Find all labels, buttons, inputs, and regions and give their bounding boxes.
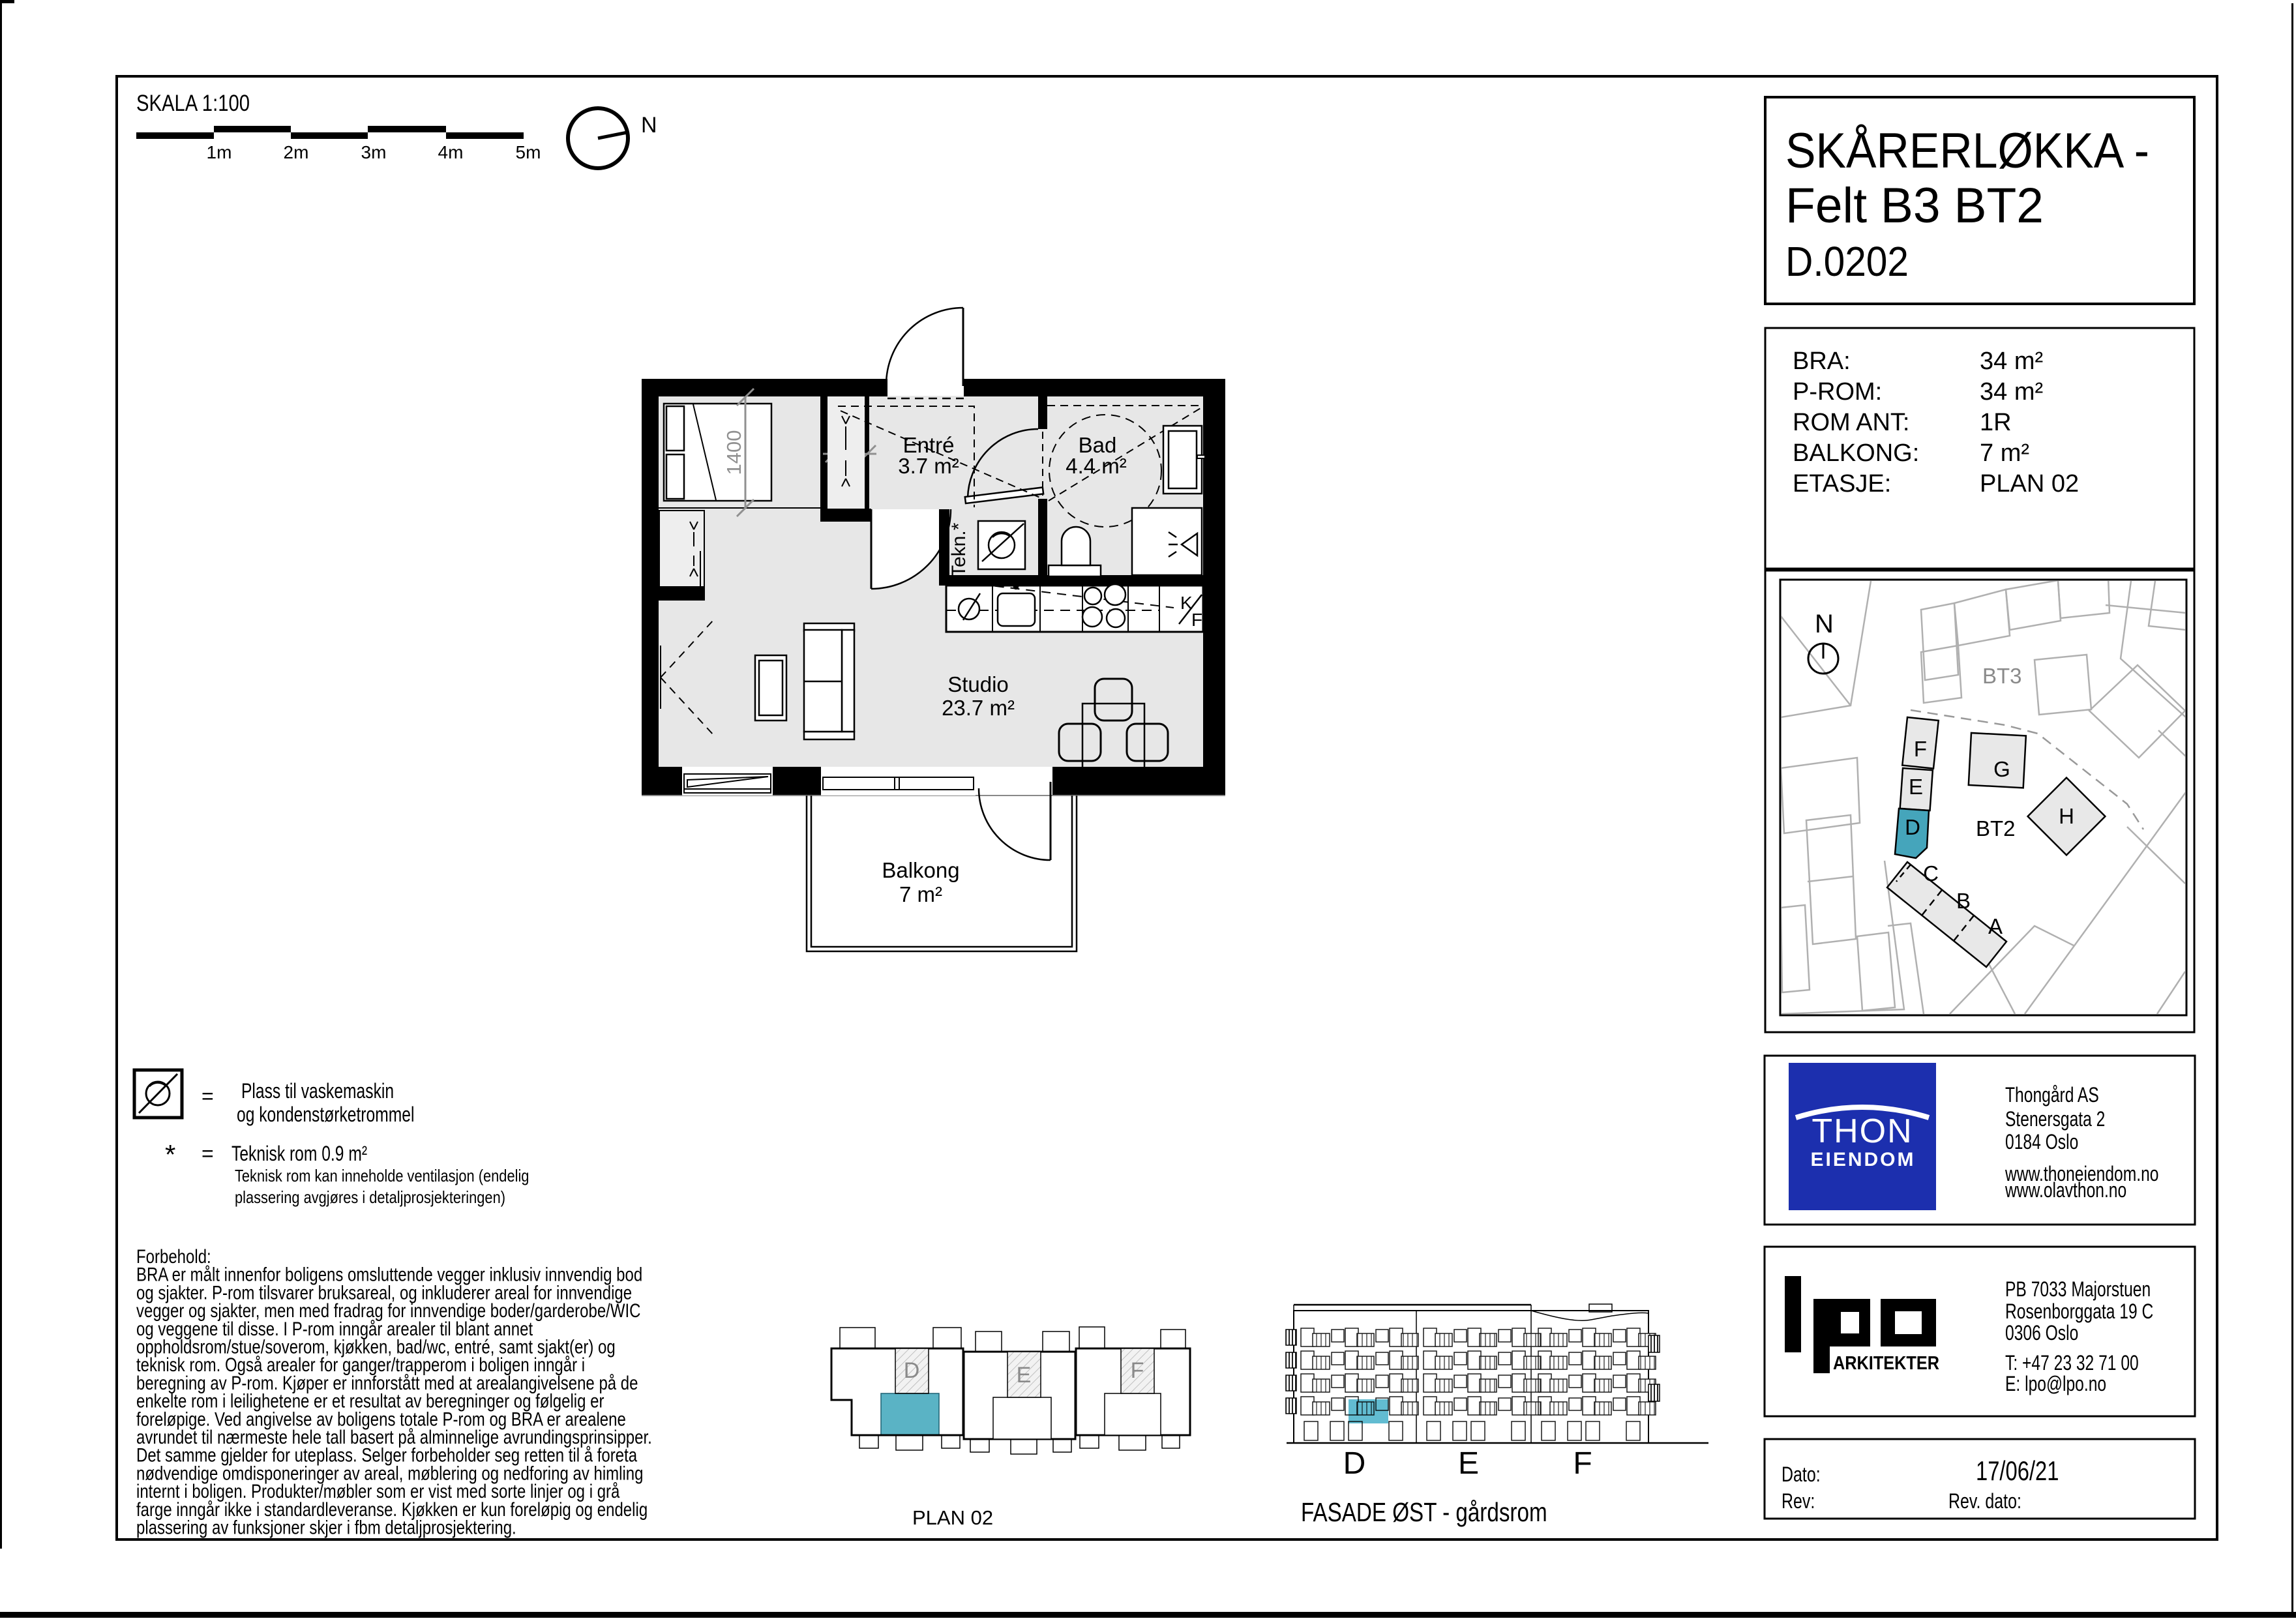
svg-text:Dato:: Dato:: [1782, 1463, 1821, 1487]
svg-text:Plass til vaskemaskin: Plass til vaskemaskin: [241, 1080, 394, 1103]
svg-text:SKALA 1:100: SKALA 1:100: [136, 91, 250, 116]
svg-text:ETASJE:: ETASJE:: [1793, 470, 1891, 498]
svg-text:1400: 1400: [723, 430, 745, 475]
svg-text:F: F: [1191, 610, 1202, 630]
svg-text:D: D: [904, 1358, 920, 1383]
svg-text:PB 7033 Majorstuen: PB 7033 Majorstuen: [2005, 1278, 2151, 1301]
svg-text:Felt B3 BT2: Felt B3 BT2: [1785, 178, 2044, 233]
svg-text:plassering av funksjoner skjer: plassering av funksjoner skjer i fbm det…: [136, 1516, 516, 1538]
svg-text:SKÅRERLØKKA -: SKÅRERLØKKA -: [1785, 123, 2149, 179]
svg-text:17/06/21: 17/06/21: [1976, 1455, 2059, 1486]
svg-text:Balkong: Balkong: [882, 858, 959, 882]
svg-text:=: =: [201, 1084, 214, 1108]
svg-text:ARKITEKTER: ARKITEKTER: [1833, 1353, 1939, 1374]
svg-text:0184 Oslo: 0184 Oslo: [2005, 1131, 2078, 1154]
svg-text:D.0202: D.0202: [1785, 238, 1909, 285]
svg-text:B: B: [1956, 889, 1971, 913]
svg-text:www.olavthon.no: www.olavthon.no: [2005, 1179, 2126, 1202]
svg-text:H: H: [2059, 804, 2074, 828]
svg-text:E: E: [1017, 1363, 1032, 1388]
svg-text:Rev:: Rev:: [1782, 1490, 1815, 1513]
svg-text:THON: THON: [1811, 1112, 1913, 1150]
svg-text:Stenersgata 2: Stenersgata 2: [2005, 1108, 2105, 1131]
svg-text:P-ROM:: P-ROM:: [1793, 378, 1882, 406]
svg-text:F: F: [1131, 1358, 1144, 1383]
svg-text:C: C: [1923, 861, 1939, 885]
svg-text:7 m²: 7 m²: [899, 882, 942, 906]
svg-text:4m: 4m: [438, 142, 464, 162]
svg-text:E: E: [1458, 1446, 1479, 1481]
svg-text:BT2: BT2: [1976, 816, 2016, 840]
svg-text:D: D: [1905, 815, 1920, 839]
svg-text:2m: 2m: [284, 142, 309, 162]
svg-text:og kondenstørketrommel: og kondenstørketrommel: [237, 1103, 414, 1127]
svg-text:1R: 1R: [1980, 409, 2012, 436]
svg-text:E: E: [1909, 775, 1923, 799]
svg-text:Studio: Studio: [947, 672, 1009, 696]
svg-text:BALKONG:: BALKONG:: [1793, 439, 1919, 467]
svg-text:=: =: [201, 1142, 214, 1165]
svg-text:0306 Oslo: 0306 Oslo: [2005, 1322, 2078, 1345]
svg-text:ROM ANT:: ROM ANT:: [1793, 409, 1909, 436]
svg-text:Rev. dato:: Rev. dato:: [1948, 1490, 2021, 1513]
svg-text:D: D: [1343, 1446, 1366, 1481]
svg-text:Teknisk rom 0.9 m²: Teknisk rom 0.9 m²: [231, 1142, 367, 1166]
svg-text:E: lpo@lpo.no: E: lpo@lpo.no: [2005, 1373, 2106, 1396]
svg-text:*: *: [165, 1139, 175, 1170]
svg-text:7 m²: 7 m²: [1980, 439, 2029, 467]
svg-text:G: G: [1993, 757, 2010, 781]
svg-text:3m: 3m: [361, 142, 387, 162]
svg-text:5m: 5m: [516, 142, 541, 162]
svg-text:FASADE ØST - gårdsrom: FASADE ØST - gårdsrom: [1301, 1497, 1547, 1527]
svg-text:F: F: [1573, 1446, 1592, 1481]
svg-text:F: F: [1914, 737, 1927, 761]
svg-text:T: +47 23 32 71 00: T: +47 23 32 71 00: [2005, 1352, 2139, 1375]
svg-text:Tekn.*: Tekn.*: [948, 522, 970, 577]
svg-text:N: N: [641, 113, 657, 138]
svg-text:PLAN 02: PLAN 02: [1980, 470, 2079, 498]
svg-text:A: A: [1988, 914, 2003, 938]
svg-text:4.4 m²: 4.4 m²: [1066, 454, 1127, 478]
svg-text:PLAN 02: PLAN 02: [912, 1506, 993, 1529]
svg-text:Teknisk rom kan inneholde vent: Teknisk rom kan inneholde ventilasjon (e…: [235, 1167, 529, 1185]
svg-text:34 m²: 34 m²: [1980, 378, 2043, 406]
svg-text:EIENDOM: EIENDOM: [1810, 1149, 1915, 1170]
svg-text:34 m²: 34 m²: [1980, 348, 2043, 375]
svg-text:3.7 m²: 3.7 m²: [898, 454, 959, 478]
svg-text:N: N: [1815, 610, 1834, 638]
svg-text:23.7 m²: 23.7 m²: [942, 696, 1015, 720]
svg-text:1m: 1m: [207, 142, 232, 162]
svg-text:Thongård AS: Thongård AS: [2005, 1084, 2099, 1107]
svg-text:Rosenborggata 19 C: Rosenborggata 19 C: [2005, 1300, 2153, 1324]
svg-text:plassering avgjøres i detaljpr: plassering avgjøres i detaljprosjekterin…: [235, 1188, 505, 1207]
svg-text:BRA:: BRA:: [1793, 348, 1851, 375]
svg-text:BT3: BT3: [1982, 664, 2022, 688]
